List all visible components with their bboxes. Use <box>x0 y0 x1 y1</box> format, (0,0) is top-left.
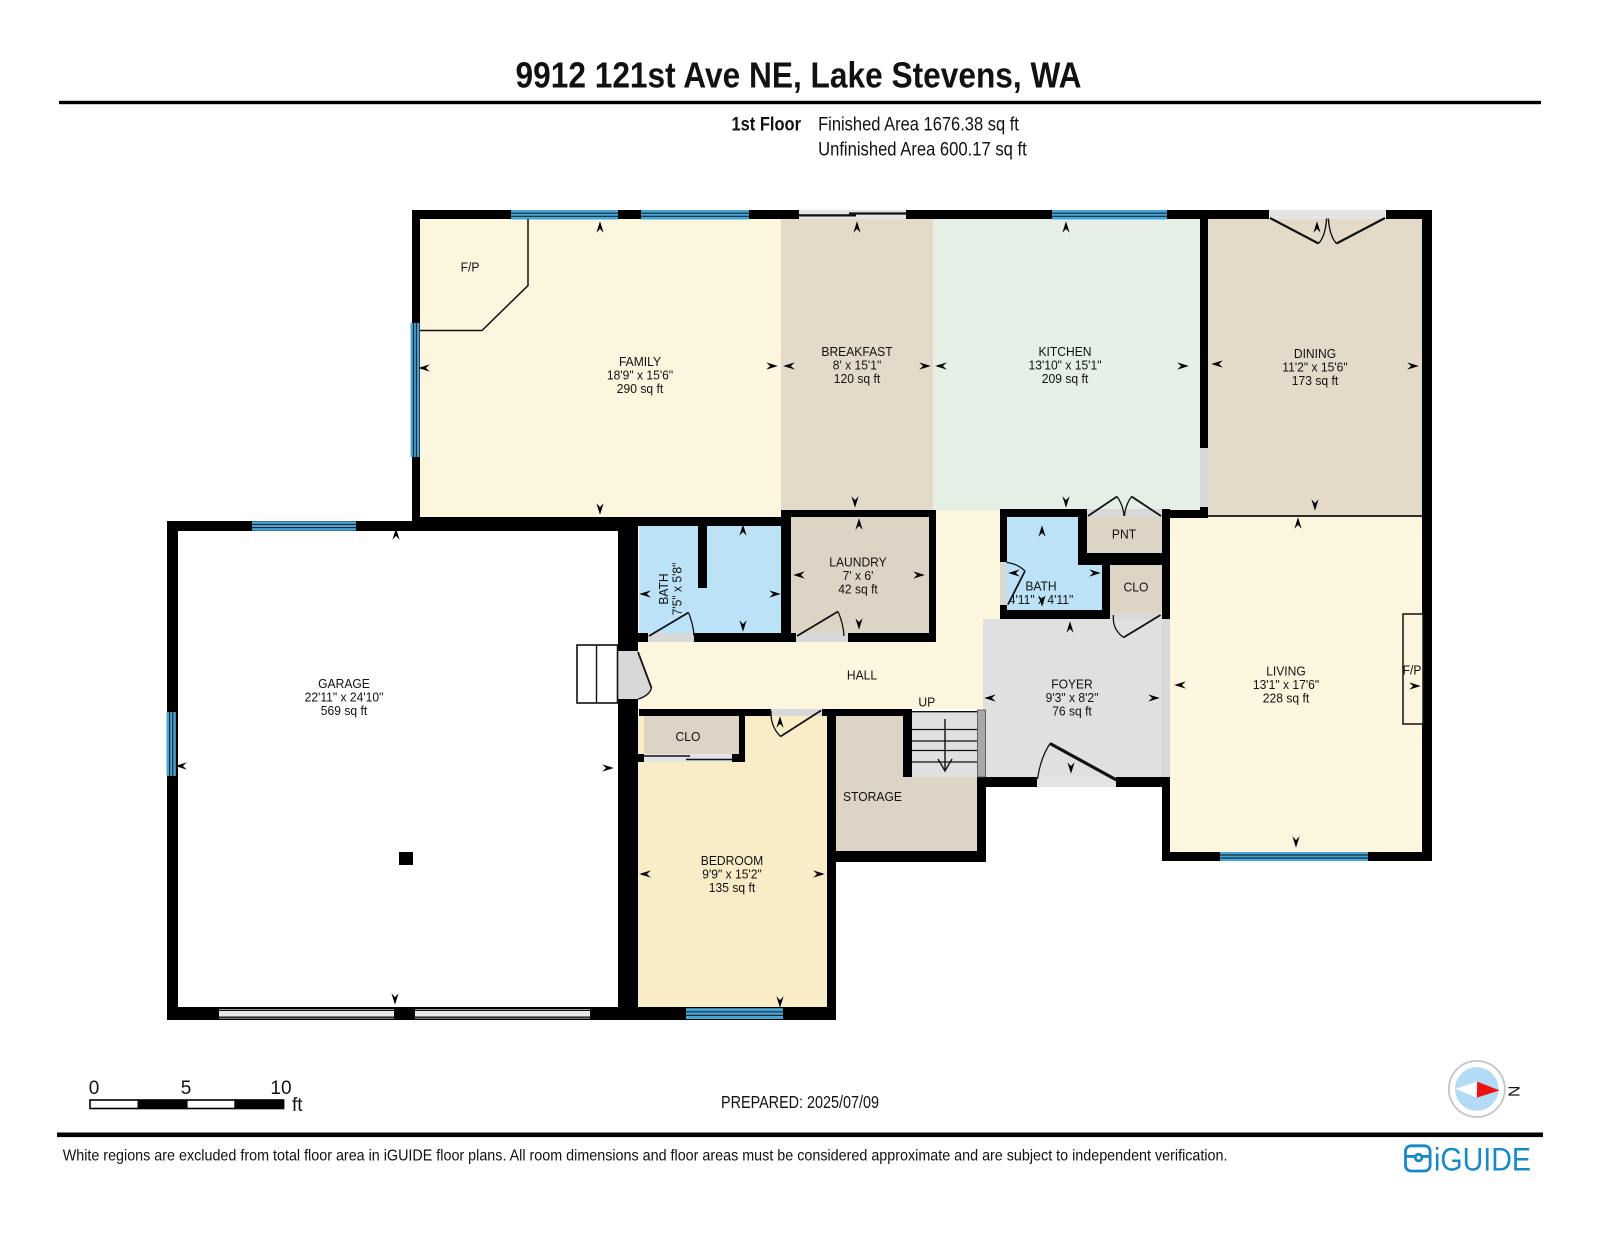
svg-text:120 sq ft: 120 sq ft <box>834 371 881 386</box>
svg-text:76 sq ft: 76 sq ft <box>1052 703 1092 718</box>
svg-text:Finished Area 1676.38 sq ft: Finished Area 1676.38 sq ft <box>818 114 1019 136</box>
svg-text:42 sq ft: 42 sq ft <box>838 582 878 597</box>
svg-text:5: 5 <box>181 1078 192 1099</box>
svg-text:UP: UP <box>918 694 935 709</box>
svg-text:7'5" x 5'8": 7'5" x 5'8" <box>670 563 685 616</box>
svg-text:4'11" x 4'11": 4'11" x 4'11" <box>1009 592 1074 607</box>
svg-text:0: 0 <box>89 1078 100 1099</box>
svg-text:F/P: F/P <box>461 260 480 275</box>
svg-text:STORAGE: STORAGE <box>843 789 902 804</box>
svg-text:F/P: F/P <box>1403 663 1422 678</box>
svg-text:173 sq ft: 173 sq ft <box>1292 373 1339 388</box>
svg-text:White regions are excluded fro: White regions are excluded from total fl… <box>63 1148 1228 1165</box>
svg-text:135 sq ft: 135 sq ft <box>709 880 756 895</box>
svg-text:PNT: PNT <box>1112 527 1136 542</box>
svg-text:PREPARED: 2025/07/09: PREPARED: 2025/07/09 <box>721 1092 879 1112</box>
svg-text:CLO: CLO <box>676 729 701 744</box>
svg-text:290 sq ft: 290 sq ft <box>617 381 664 396</box>
svg-text:HALL: HALL <box>847 668 877 683</box>
svg-text:Unfinished Area 600.17 sq ft: Unfinished Area 600.17 sq ft <box>818 138 1027 160</box>
svg-text:1st Floor: 1st Floor <box>732 114 802 136</box>
svg-text:ft: ft <box>292 1095 303 1116</box>
svg-text:10: 10 <box>270 1078 291 1099</box>
svg-text:569 sq ft: 569 sq ft <box>321 703 368 718</box>
svg-text:209 sq ft: 209 sq ft <box>1042 371 1089 386</box>
svg-text:iGUIDE: iGUIDE <box>1434 1142 1531 1178</box>
svg-text:N: N <box>1505 1086 1522 1097</box>
svg-text:228 sq ft: 228 sq ft <box>1263 691 1310 706</box>
svg-text:CLO: CLO <box>1124 580 1149 595</box>
svg-text:9912 121st Ave NE, Lake Steven: 9912 121st Ave NE, Lake Stevens, WA <box>516 54 1082 95</box>
